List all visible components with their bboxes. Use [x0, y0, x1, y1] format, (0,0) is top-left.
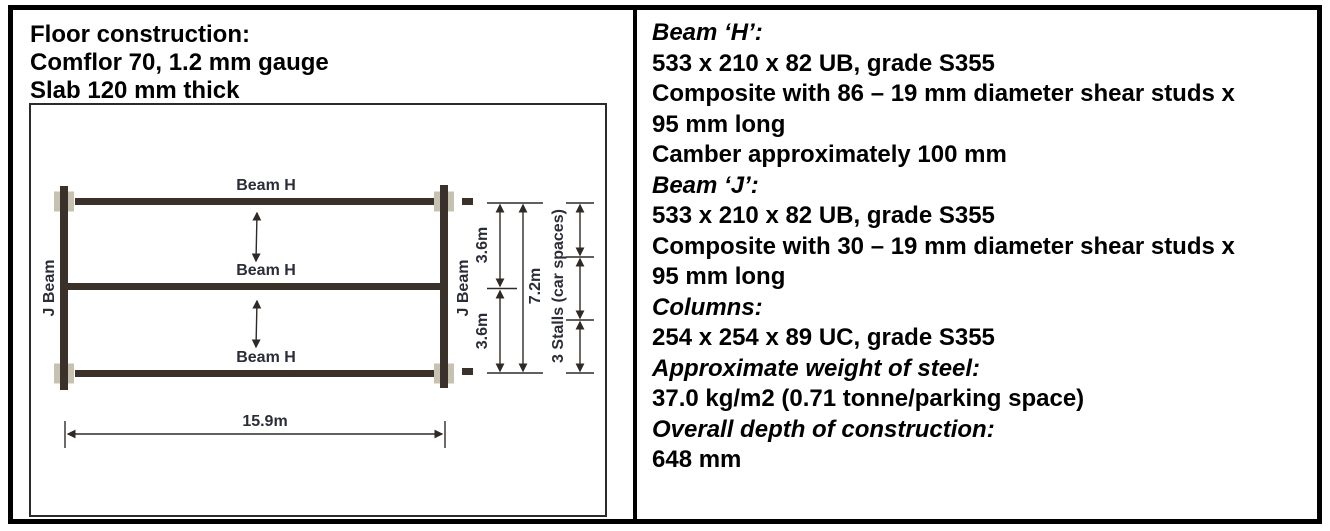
dimension-lines — [65, 203, 594, 448]
page: { "colors": { "beam": "#3a312a", "plate"… — [0, 0, 1330, 531]
beam-stub-top — [462, 198, 473, 205]
spec-line: 533 x 210 x 82 UB, grade S355 — [652, 49, 1317, 80]
spec-heading: Overall depth of construction: — [652, 415, 1317, 446]
diagram-linework — [31, 105, 605, 515]
beam-spec-text: Beam ‘H’: 533 x 210 x 82 UB, grade S355 … — [637, 10, 1317, 476]
beam-h-bottom — [75, 370, 434, 377]
dim-label-stalls: 3 Stalls (car spaces) — [551, 209, 567, 363]
dim-label-15-9m: 15.9m — [242, 414, 287, 430]
header-line-1: Floor construction: — [30, 21, 633, 49]
beam-h-label-bottom: Beam H — [236, 350, 296, 366]
j-beam-label-right: J Beam — [456, 260, 472, 317]
spec-line: 648 mm — [652, 445, 1317, 476]
j-beam-label-left: J Beam — [42, 260, 58, 317]
floor-construction-header: Floor construction: Comflor 70, 1.2 mm g… — [13, 10, 633, 105]
spec-line: Composite with 86 – 19 mm diameter shear… — [652, 79, 1317, 110]
span-arrows — [256, 213, 257, 347]
beam-h-mid — [68, 283, 444, 290]
spec-line: 254 x 254 x 89 UC, grade S355 — [652, 323, 1317, 354]
spec-heading: Columns: — [652, 293, 1317, 324]
header-line-3: Slab 120 mm thick — [30, 77, 633, 105]
spec-line: 95 mm long — [652, 262, 1317, 293]
spec-heading: Beam ‘J’: — [652, 171, 1317, 202]
beam-spec-cell: Beam ‘H’: 533 x 210 x 82 UB, grade S355 … — [637, 10, 1317, 519]
beam-h-top — [75, 198, 434, 205]
beam-h-label-top: Beam H — [236, 178, 296, 194]
spec-line: Composite with 30 – 19 mm diameter shear… — [652, 232, 1317, 263]
j-beam-left — [60, 186, 68, 390]
spec-heading: Beam ‘H’: — [652, 18, 1317, 49]
dim-label-3-6m-bottom: 3.6m — [475, 313, 491, 349]
dim-label-7-2m: 7.2m — [528, 268, 544, 304]
spec-line: 533 x 210 x 82 UB, grade S355 — [652, 201, 1317, 232]
floor-construction-cell: Floor construction: Comflor 70, 1.2 mm g… — [13, 10, 633, 519]
floor-plan-diagram: Beam H Beam H Beam H J Beam J Beam 3.6m … — [29, 103, 607, 517]
spec-line: 37.0 kg/m2 (0.71 tonne/parking space) — [652, 384, 1317, 415]
header-line-2: Comflor 70, 1.2 mm gauge — [30, 49, 633, 77]
beam-stub-bottom — [462, 368, 473, 375]
beam-h-label-mid: Beam H — [236, 263, 296, 279]
spec-heading: Approximate weight of steel: — [652, 354, 1317, 385]
spec-line: Camber approximately 100 mm — [652, 140, 1317, 171]
spec-table: Floor construction: Comflor 70, 1.2 mm g… — [8, 5, 1322, 524]
dim-label-3-6m-top: 3.6m — [475, 227, 491, 263]
spec-line: 95 mm long — [652, 110, 1317, 141]
